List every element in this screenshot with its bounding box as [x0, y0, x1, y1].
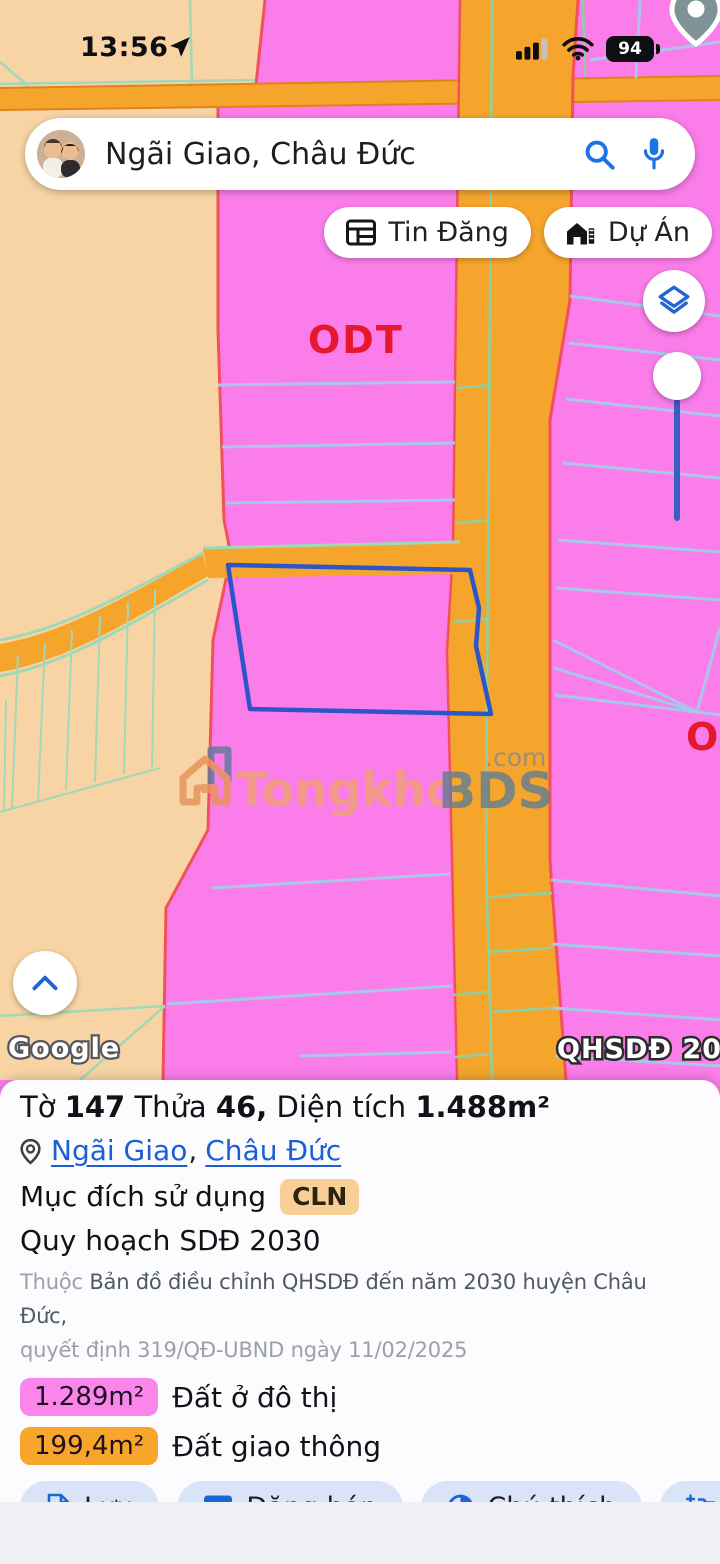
- location-row: Ngãi Giao , Châu Đức: [20, 1134, 700, 1168]
- clock: 13:56: [80, 32, 168, 63]
- legend-row-traffic: 199,4m² Đất giao thông: [20, 1427, 700, 1465]
- source-map-name: Bản đồ điều chỉnh QHSDĐ đến năm 2030 huy…: [20, 1270, 647, 1328]
- legend-row-residential: 1.289m² Đất ở đô thị: [20, 1378, 700, 1416]
- legend-area-badge: 199,4m²: [20, 1427, 158, 1465]
- title-area-label: Diện tích: [277, 1090, 407, 1124]
- wifi-icon: [562, 37, 594, 61]
- parcel-info-panel: Tờ 147 Thửa 46, Diện tích 1.488m² Ngãi G…: [0, 1080, 720, 1564]
- zoom-slider-knob[interactable]: [653, 352, 701, 400]
- battery-icon: 94: [606, 36, 654, 62]
- status-bar: 13:56 94: [0, 30, 720, 72]
- title-parcel-number: 46,: [216, 1090, 267, 1124]
- zoom-slider-track[interactable]: [674, 399, 680, 521]
- location-separator: ,: [188, 1134, 197, 1168]
- legend-label: Đất giao thông: [172, 1430, 381, 1463]
- footer-strip: [0, 1502, 720, 1564]
- newspaper-icon: [346, 219, 376, 246]
- usage-label: Mục đích sử dụng: [20, 1178, 266, 1216]
- signal-icon: [516, 37, 550, 61]
- chevron-up-icon: [28, 970, 62, 996]
- plan-year-badge: QHSDĐ 2030: [557, 1034, 720, 1065]
- legend-label: Đất ở đô thị: [172, 1381, 337, 1414]
- app-screen: ODT O Tongkho BDS .com Google QHSDĐ 2030…: [0, 0, 720, 1564]
- title-sheet-number: 147: [65, 1090, 126, 1124]
- avatar[interactable]: [37, 130, 85, 178]
- home-work-icon: [566, 219, 596, 246]
- listings-chip-label: Tin Đăng: [388, 217, 509, 248]
- plan-row: Quy hoạch SDĐ 2030: [20, 1224, 700, 1258]
- title-sheet-label: Tờ: [20, 1090, 55, 1124]
- location-arrow-icon: [168, 35, 192, 59]
- source-prefix: Thuộc: [20, 1270, 83, 1294]
- expand-sheet-button[interactable]: [13, 951, 77, 1015]
- google-logo: Google: [8, 1033, 120, 1064]
- layers-button[interactable]: [643, 270, 705, 332]
- layers-icon: [656, 283, 692, 319]
- legend-area-badge: 1.289m²: [20, 1378, 158, 1416]
- zone-label-odt-right: O: [686, 715, 718, 759]
- title-parcel-label: Thửa: [134, 1090, 206, 1124]
- source-note: Thuộc Bản đồ điều chỉnh QHSDĐ đến năm 20…: [20, 1265, 700, 1367]
- search-input[interactable]: Ngãi Giao, Châu Đức: [105, 137, 583, 172]
- usage-row: Mục đích sử dụng CLN: [20, 1178, 700, 1216]
- district-link[interactable]: Châu Đức: [205, 1134, 341, 1168]
- watermark-brand: Tongkho: [236, 763, 458, 818]
- watermark-suffix: .com: [485, 743, 546, 772]
- usage-badge: CLN: [280, 1179, 359, 1215]
- search-bar[interactable]: Ngãi Giao, Châu Đức: [25, 118, 695, 190]
- battery-percent: 94: [618, 39, 642, 59]
- source-decision: quyết định 319/QĐ-UBND ngày 11/02/2025: [20, 1338, 467, 1362]
- projects-chip-label: Dự Án: [608, 217, 690, 248]
- projects-chip[interactable]: Dự Án: [544, 207, 712, 258]
- listings-chip[interactable]: Tin Đăng: [324, 207, 531, 258]
- ward-link[interactable]: Ngãi Giao: [51, 1134, 187, 1168]
- mic-icon[interactable]: [641, 137, 667, 171]
- title-area-value: 1.488m²: [415, 1090, 550, 1124]
- parcel-title: Tờ 147 Thửa 46, Diện tích 1.488m²: [20, 1090, 700, 1125]
- zone-label-odt: ODT: [308, 318, 404, 362]
- pin-outline-icon: [20, 1138, 41, 1165]
- search-icon[interactable]: [583, 138, 615, 170]
